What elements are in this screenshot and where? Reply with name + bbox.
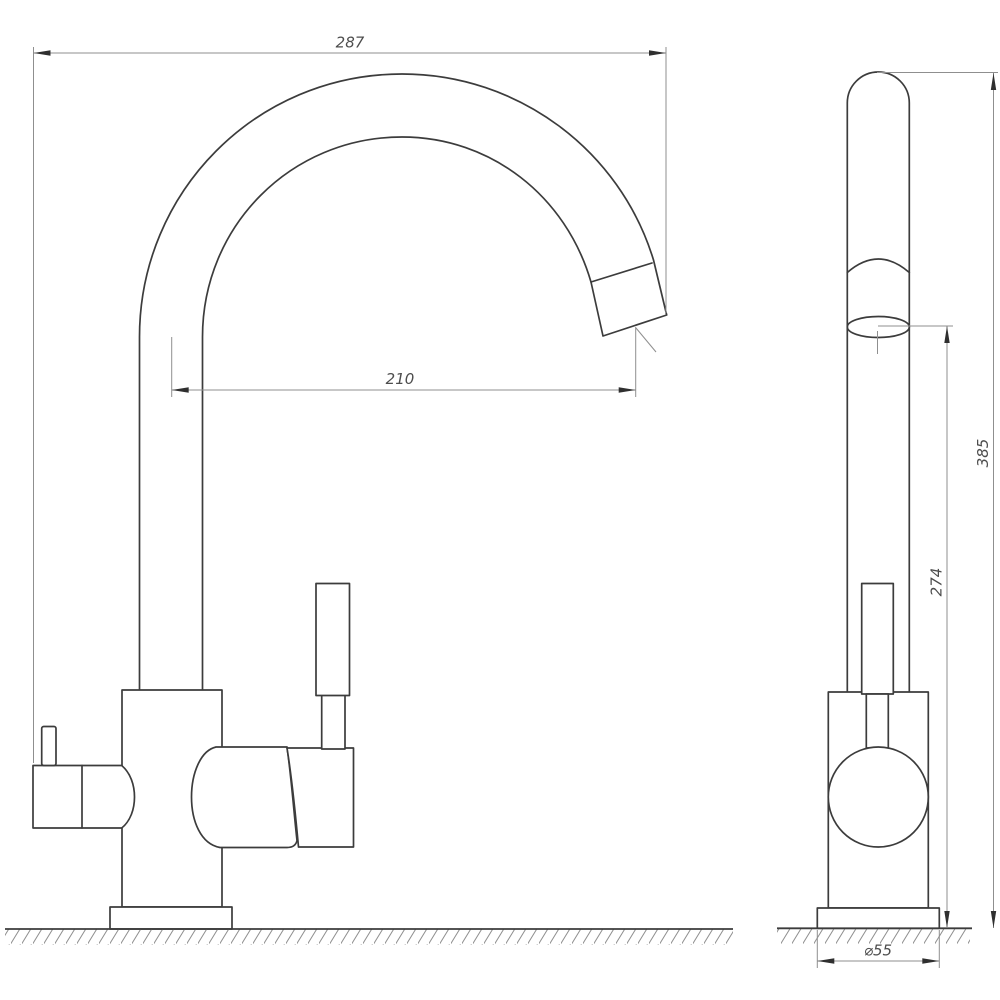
dimension-label-diameter-55: ⌀55 [864,942,892,960]
dimension-label-287: 287 [336,34,365,52]
extension-tick-oblique [636,328,656,352]
dimension-label-274: 274 [928,568,946,597]
arrowhead-down [991,911,996,928]
lever-grip-side [862,584,894,695]
lever-stem-front [322,695,345,749]
lever-mount-front [287,748,354,847]
dimension-label-385: 385 [974,439,992,468]
arrowhead-up [944,326,949,343]
dimension-spout-reach: 210 [172,327,656,397]
base-flange-side [817,908,939,928]
lever-grip-front [316,584,350,696]
arrowhead-left [34,50,51,55]
aerator-joint-line [591,263,652,282]
front-view [5,74,733,945]
drawing-page: 287 210 385 274 [0,0,1000,1000]
arrowhead-right [649,50,666,55]
side-view [777,72,972,944]
filter-handle-body [33,766,135,829]
arrowhead-left [817,958,834,963]
base-flange-front [110,907,232,929]
arrowhead-left [172,387,189,392]
arrowhead-right [922,958,939,963]
aerator-joint-arc-side [847,259,909,273]
arrowhead-right [619,387,636,392]
mixer-ball-front [192,747,298,848]
filter-handle-knob [42,727,56,766]
spout-outlet-ellipse [847,317,909,338]
arrowhead-up [991,73,996,90]
mixer-ball-side [828,747,928,847]
faucet-drawing-canvas: 287 210 385 274 [0,0,1000,1000]
dimension-label-210: 210 [386,370,415,388]
ground-hatch-front [5,930,733,945]
arrowhead-down [944,911,949,928]
lever-stem-side [866,694,888,748]
